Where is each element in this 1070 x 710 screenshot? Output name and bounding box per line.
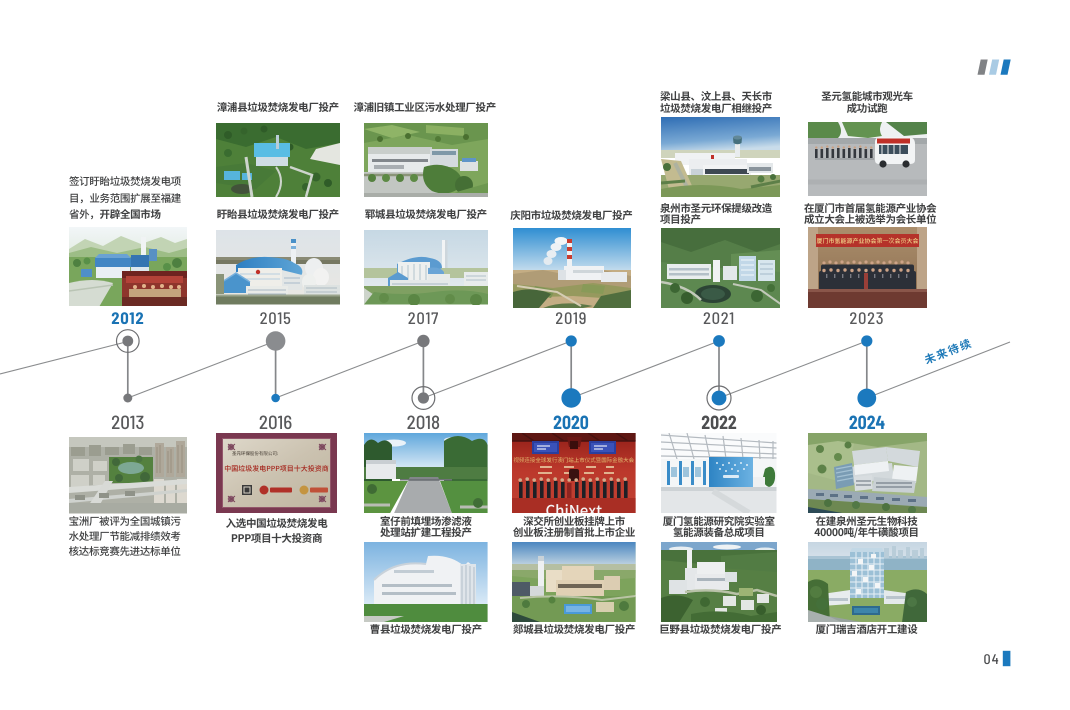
svg-text:厦门市氢能源产业协会第一次会员大会: 厦门市氢能源产业协会第一次会员大会 [816, 236, 918, 245]
svg-text:圣元环保股份有限公司:: 圣元环保股份有限公司: [232, 450, 279, 457]
svg-text:ChiNext: ChiNext [546, 500, 603, 513]
svg-text:中国垃圾发电PPP项目十大投资商: 中国垃圾发电PPP项目十大投资商 [224, 464, 328, 474]
svg-text:视频连接全球发行澳门站上市仪式暨国际金融大会: 视频连接全球发行澳门站上市仪式暨国际金融大会 [514, 456, 635, 464]
